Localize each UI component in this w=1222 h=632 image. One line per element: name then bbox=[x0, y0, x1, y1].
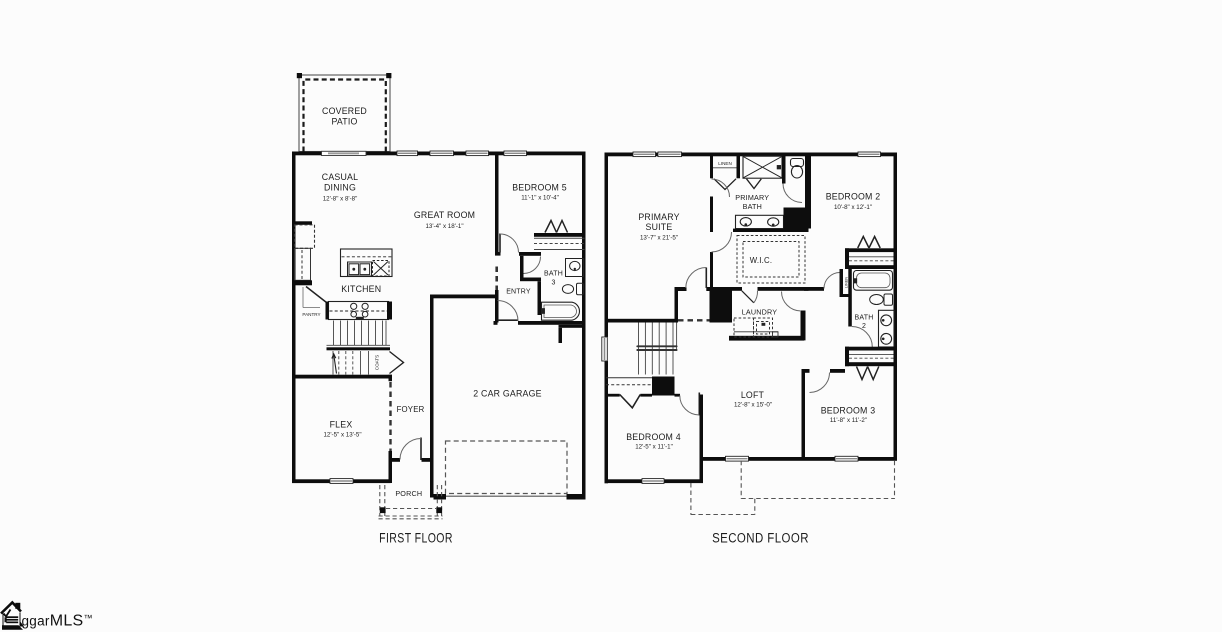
svg-text:13'-4" x 18'-1": 13'-4" x 18'-1" bbox=[425, 223, 463, 230]
svg-text:13'-7" x 21'-5": 13'-7" x 21'-5" bbox=[640, 235, 678, 242]
svg-text:11'-8" x 11'-2": 11'-8" x 11'-2" bbox=[830, 417, 867, 424]
svg-text:10'-8" x 12'-1": 10'-8" x 12'-1" bbox=[834, 204, 872, 211]
svg-text:PRIMARY: PRIMARY bbox=[735, 193, 769, 202]
svg-text:LOFT: LOFT bbox=[741, 390, 765, 400]
svg-text:BATH: BATH bbox=[544, 271, 563, 278]
svg-text:FLEX: FLEX bbox=[330, 420, 353, 430]
svg-text:FIRST FLOOR: FIRST FLOOR bbox=[379, 530, 453, 546]
svg-text:FOYER: FOYER bbox=[397, 405, 425, 414]
svg-text:PRIMARY: PRIMARY bbox=[638, 212, 679, 222]
svg-text:CASUAL: CASUAL bbox=[322, 172, 358, 182]
svg-text:11'-1" x 10'-4": 11'-1" x 10'-4" bbox=[521, 195, 559, 202]
svg-text:LINEN: LINEN bbox=[718, 161, 732, 166]
svg-text:2 CAR GARAGE: 2 CAR GARAGE bbox=[473, 389, 541, 399]
svg-text:12'-8" x 15'-0": 12'-8" x 15'-0" bbox=[734, 402, 772, 409]
svg-text:BATH: BATH bbox=[743, 202, 762, 211]
svg-text:DINING: DINING bbox=[324, 183, 356, 193]
svg-text:BEDROOM 5: BEDROOM 5 bbox=[512, 183, 567, 193]
svg-text:SECOND FLOOR: SECOND FLOOR bbox=[712, 530, 809, 545]
svg-text:BATH: BATH bbox=[855, 315, 874, 322]
svg-text:PANTRY: PANTRY bbox=[302, 312, 320, 317]
svg-text:12'-5" x 13'-5": 12'-5" x 13'-5" bbox=[323, 432, 361, 439]
svg-text:ggarMLS™: ggarMLS™ bbox=[22, 613, 93, 630]
svg-text:3: 3 bbox=[551, 280, 555, 287]
svg-text:12'-8" x 8'-8": 12'-8" x 8'-8" bbox=[323, 196, 358, 203]
svg-text:GREAT ROOM: GREAT ROOM bbox=[414, 210, 475, 220]
svg-text:BEDROOM 3: BEDROOM 3 bbox=[821, 406, 876, 416]
svg-text:LINEN: LINEN bbox=[844, 277, 848, 288]
svg-text:PATIO: PATIO bbox=[331, 117, 357, 127]
svg-text:12'-5" x 11'-1": 12'-5" x 11'-1" bbox=[635, 444, 673, 451]
svg-text:ENTRY: ENTRY bbox=[506, 289, 531, 296]
svg-text:BEDROOM 2: BEDROOM 2 bbox=[826, 192, 881, 202]
svg-text:COVERED: COVERED bbox=[322, 106, 367, 116]
svg-text:PORCH: PORCH bbox=[395, 489, 422, 498]
svg-text:LAUNDRY: LAUNDRY bbox=[742, 308, 778, 317]
svg-text:COATS: COATS bbox=[375, 355, 380, 370]
svg-text:BEDROOM 4: BEDROOM 4 bbox=[626, 432, 681, 442]
svg-text:SUITE: SUITE bbox=[646, 222, 673, 232]
svg-text:W.I.C.: W.I.C. bbox=[750, 256, 772, 265]
svg-text:KITCHEN: KITCHEN bbox=[341, 284, 381, 294]
